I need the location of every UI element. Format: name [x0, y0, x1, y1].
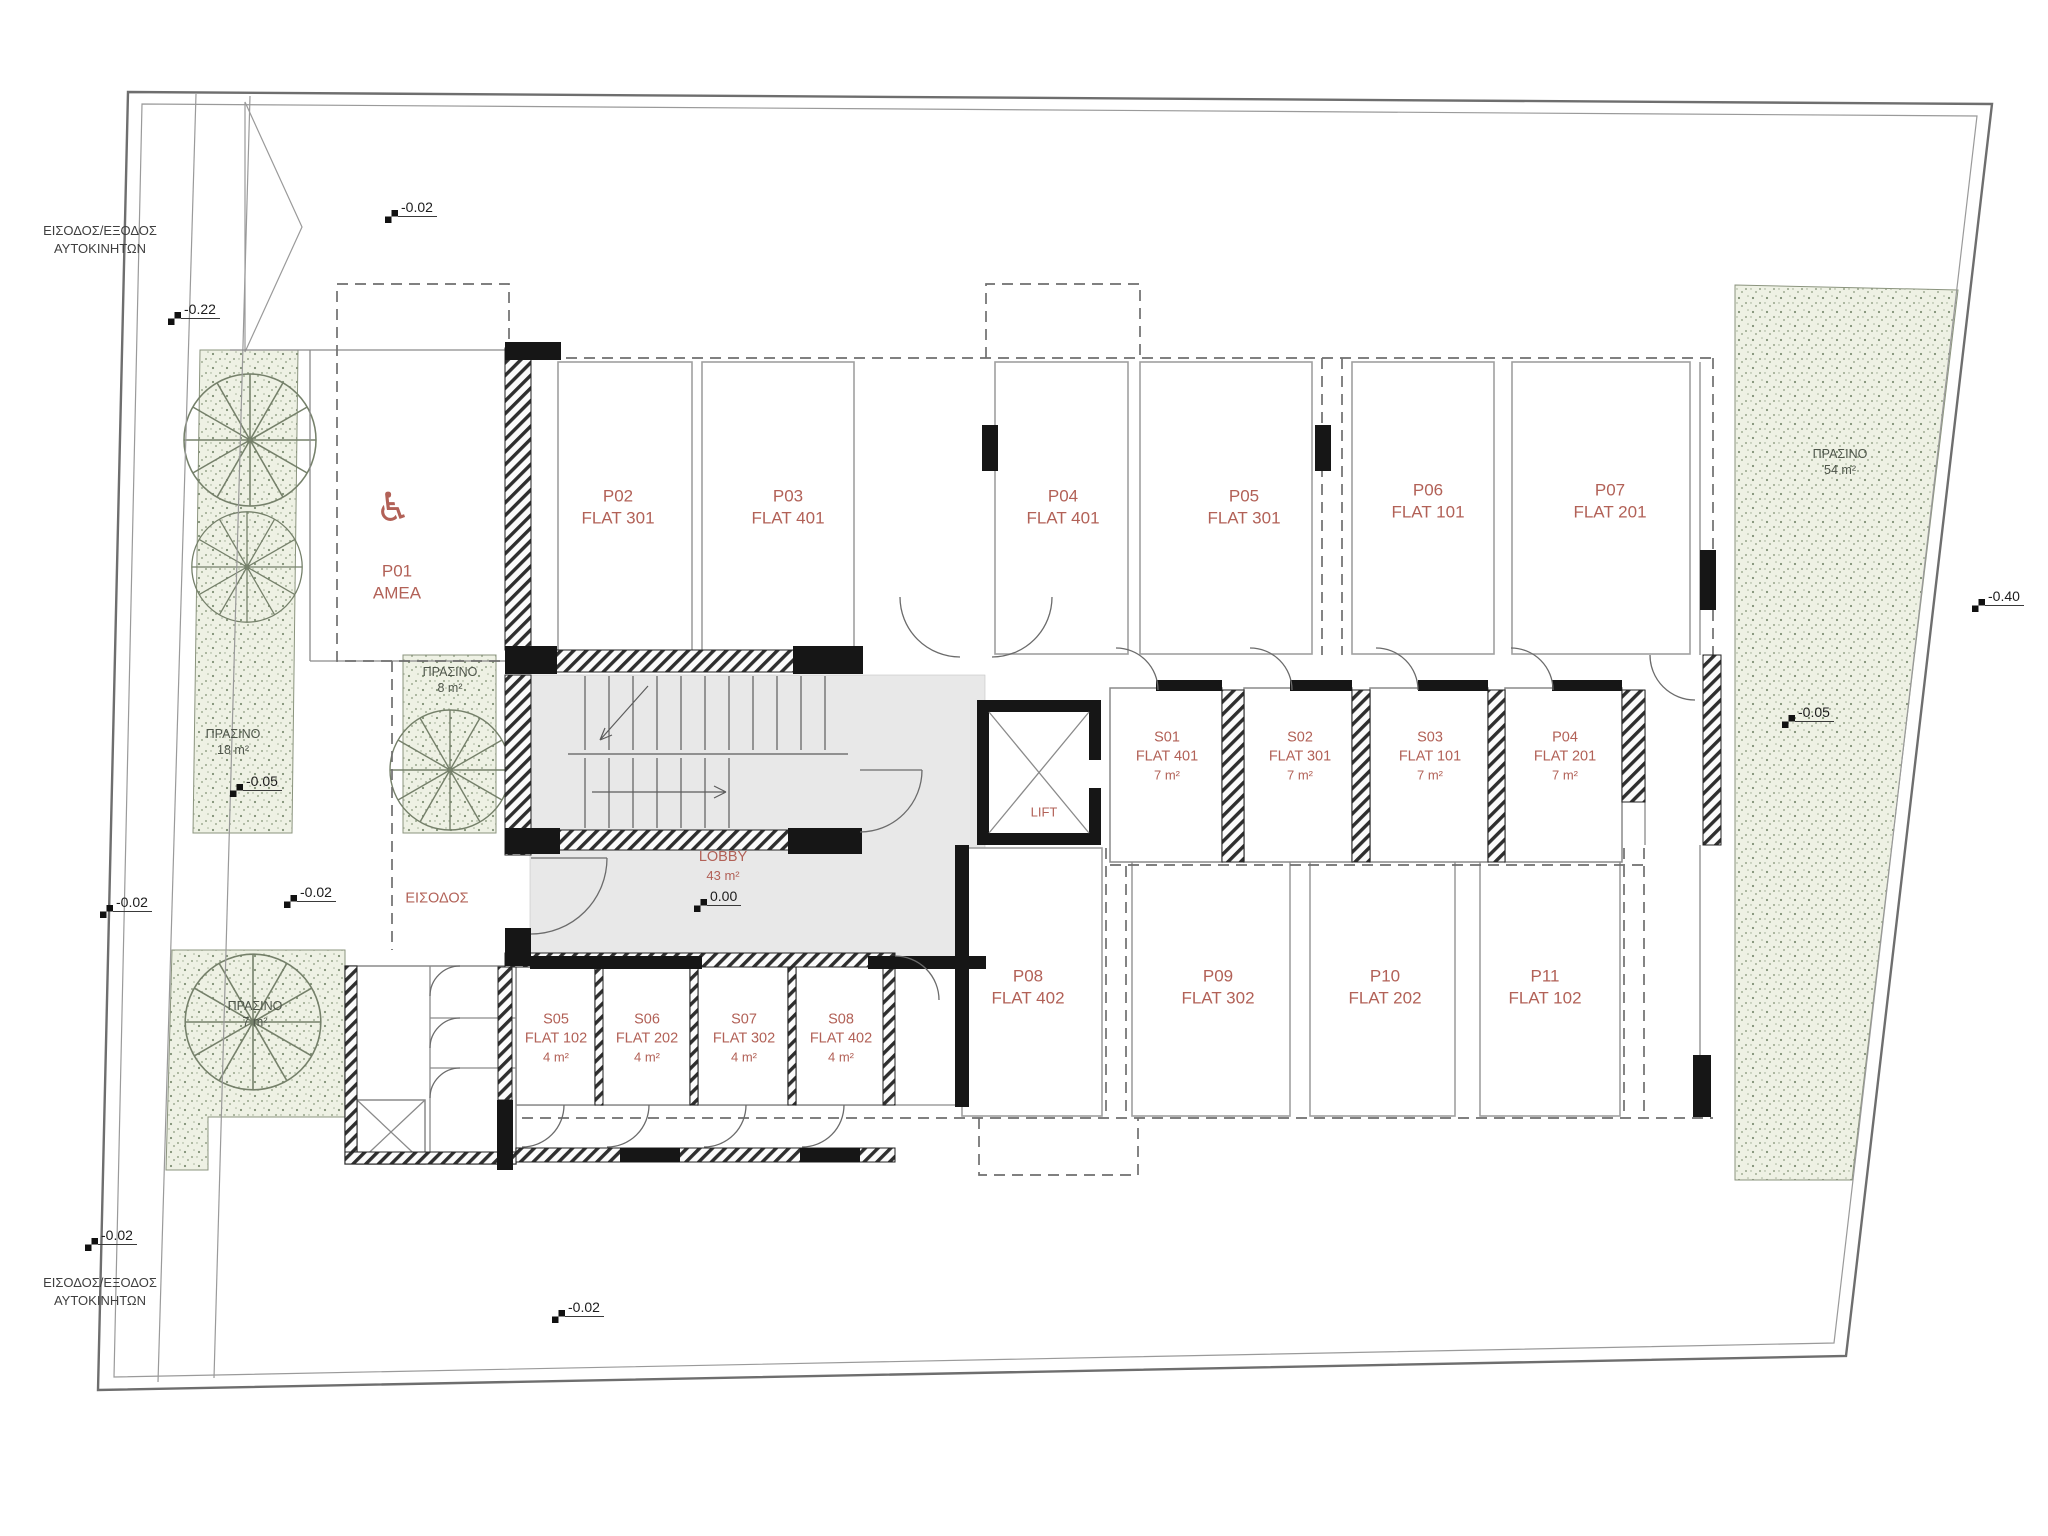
- parking-label-p07: P07 FLAT 201: [1573, 480, 1646, 525]
- tree-icon: [192, 512, 302, 622]
- parking-label-p09: P09 FLAT 302: [1181, 966, 1254, 1011]
- elevation-marker-top: -0.02: [385, 204, 437, 223]
- benchmark-icon: [85, 1238, 98, 1251]
- parking-label-p03: P03 FLAT 401: [751, 486, 824, 531]
- benchmark-icon: [284, 895, 297, 908]
- elevation-marker-right-green: -0.05: [1782, 709, 1834, 728]
- storage-label-s03: S03 FLAT 101 7 m²: [1399, 728, 1461, 783]
- storage-label-s07: S07 FLAT 302 4 m²: [713, 1010, 775, 1065]
- elevation-marker-left-mid: -0.02: [100, 899, 152, 918]
- parking-label-p02: P02 FLAT 301: [581, 486, 654, 531]
- benchmark-icon: [552, 1310, 565, 1323]
- elevation-marker-bottom-center: -0.02: [552, 1304, 604, 1323]
- green-label-middle: ΠΡΑΣΙΝΟ 8 m²: [423, 664, 478, 697]
- storage-label-s06: S06 FLAT 202 4 m²: [616, 1010, 678, 1065]
- car-access-label-top: ΕΙΣΟΔΟΣ/ΕΞΟΔΟΣ ΑΥΤΟΚΙΝΗΤΩΝ: [43, 222, 157, 258]
- benchmark-icon: [1972, 599, 1985, 612]
- floor-plan-page: .green{fill:url(#stipple);stroke:#8b947e…: [0, 0, 2048, 1536]
- parking-label-p04: P04 FLAT 401: [1026, 486, 1099, 531]
- lift-label: LIFT: [1031, 803, 1058, 820]
- entrance-label: ΕΙΣΟΔΟΣ: [405, 889, 468, 908]
- storage-label-s02: S02 FLAT 301 7 m²: [1269, 728, 1331, 783]
- elevation-marker-entrance-court: -0.02: [284, 889, 336, 908]
- benchmark-icon: [385, 210, 398, 223]
- parking-label-p11: P11 FLAT 102: [1508, 966, 1581, 1011]
- lobby-label: LOBBY 43 m²: [699, 848, 747, 884]
- storage-label-s05: S05 FLAT 102 4 m²: [525, 1010, 587, 1065]
- floor-plan-drawing: .green{fill:url(#stipple);stroke:#8b947e…: [0, 0, 2048, 1536]
- benchmark-icon: [230, 784, 243, 797]
- parking-stall-p01: [337, 284, 509, 661]
- wheelchair-icon: ♿: [375, 485, 411, 531]
- storage-label-s04: P04 FLAT 201 7 m²: [1534, 728, 1596, 783]
- benchmark-icon: [1782, 715, 1795, 728]
- storage-label-s01: S01 FLAT 401 7 m²: [1136, 728, 1198, 783]
- tree-icon: [390, 710, 510, 830]
- lobby-floor: [530, 675, 985, 966]
- elevation-marker-upper-left: -0.22: [168, 306, 220, 325]
- car-access-label-bottom: ΕΙΣΟΔΟΣ/ΕΞΟΔΟΣ ΑΥΤΟΚΙΝΗΤΩΝ: [43, 1274, 157, 1310]
- parking-label-p01: P01 ΑΜΕΑ: [373, 561, 421, 606]
- elevation-marker-bottom-left: -0.02: [85, 1232, 137, 1251]
- green-label-left: ΠΡΑΣΙΝΟ 18 m²: [206, 726, 261, 759]
- benchmark-icon: [694, 899, 707, 912]
- lift-shaft: [977, 700, 1101, 845]
- parking-label-p10: P10 FLAT 202: [1348, 966, 1421, 1011]
- tree-icon: [184, 374, 316, 506]
- parking-label-p05: P05 FLAT 301: [1207, 486, 1280, 531]
- storage-label-s08: S08 FLAT 402 4 m²: [810, 1010, 872, 1065]
- parking-label-p06: P06 FLAT 101: [1391, 480, 1464, 525]
- benchmark-icon: [168, 312, 181, 325]
- elevation-marker-left-green: -0.05: [230, 778, 282, 797]
- elevation-marker-right-outside: -0.40: [1972, 593, 2024, 612]
- elevation-marker-lobby: 0.00: [694, 893, 741, 912]
- parking-label-p08: P08 FLAT 402: [991, 966, 1064, 1011]
- green-label-bottom-left: ΠΡΑΣΙΝΟ 7 m²: [228, 998, 283, 1031]
- green-label-right: ΠΡΑΣΙΝΟ 54 m²: [1813, 446, 1868, 479]
- service-block: [345, 966, 516, 1164]
- benchmark-icon: [100, 905, 113, 918]
